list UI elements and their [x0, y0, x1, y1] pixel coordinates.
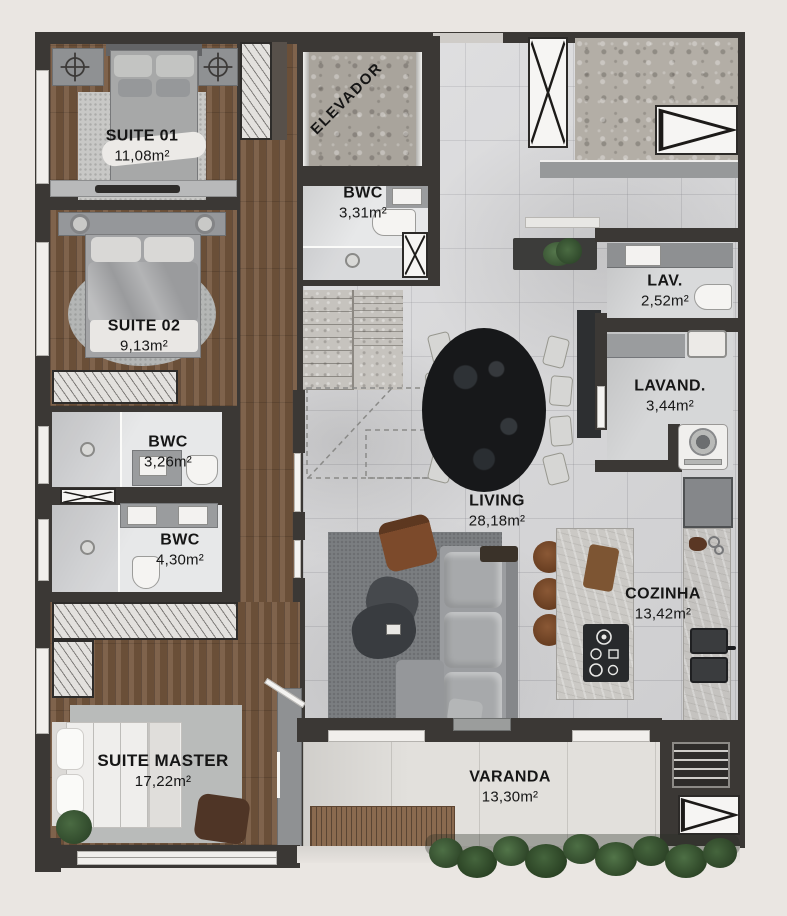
hall-shelf [540, 160, 738, 178]
room-label-bwc-suite02: BWC 3,26m² [144, 432, 192, 473]
master-bed-pillow [56, 728, 84, 770]
suite01-pillow [156, 79, 190, 97]
cooktop-burners-icon [583, 624, 629, 682]
suite02-lamp-left [70, 214, 90, 234]
suite01-pillow [118, 79, 152, 97]
room-label-lavand: LAVAND. 3,44m² [634, 376, 706, 417]
room-label-bwc-master: BWC 4,30m² [156, 530, 204, 571]
bwc-social-sink [392, 188, 422, 205]
room-label-cozinha: COZINHA 13,42m² [625, 584, 701, 625]
room-area: 11,08m² [106, 147, 179, 167]
sofa-cushion [444, 612, 502, 668]
shaft-x-icon [530, 39, 566, 146]
suite02-wardrobe [52, 370, 178, 404]
bwc-suite02-shower-glass [120, 412, 122, 487]
suite02-pillow [91, 237, 141, 262]
plant-icon [556, 238, 582, 264]
wall-corridor-living-1 [293, 390, 305, 453]
plant-icon [595, 842, 637, 876]
washing-machine-door [689, 428, 717, 456]
kitchen-sink [690, 657, 728, 683]
master-wardrobe-handle [277, 752, 280, 798]
stairs-divider [352, 290, 354, 390]
room-label-suite01: SUITE 01 11,08m² [106, 126, 179, 167]
lavand-door [597, 386, 605, 428]
suite01-sill-niche [95, 185, 180, 193]
window-suite02 [36, 242, 49, 356]
lamp-cross-icon [203, 52, 233, 82]
room-area: 17,22m² [97, 772, 228, 792]
room-area: 13,30m² [469, 788, 551, 808]
plant-icon [56, 810, 92, 844]
coffee-table-tray [386, 624, 401, 635]
varanda-planter [453, 718, 511, 731]
stairs-treads-right [353, 290, 403, 352]
varanda-door-sill [572, 730, 650, 742]
varanda-door-sill [328, 730, 425, 742]
lav-left-wall-upper [595, 228, 607, 242]
window-bwc-suite02 [38, 426, 49, 484]
plant-icon [525, 844, 567, 878]
counter-decor [689, 537, 707, 551]
entry-door-sill [433, 33, 503, 43]
hall-closet-dark-side [272, 42, 287, 140]
shaft-box-top [528, 37, 568, 148]
room-label-suite-master: SUITE MASTER 17,22m² [97, 750, 228, 792]
sliding-door-2 [294, 540, 301, 578]
room-area: 28,18m² [469, 512, 525, 532]
bwc-master-sink [127, 506, 157, 525]
room-name: SUITE 02 [108, 316, 181, 337]
shaft-x-icon [404, 234, 426, 276]
room-name: BWC [144, 432, 192, 453]
elevator-rail-left [303, 52, 309, 166]
room-name: COZINHA [625, 584, 701, 605]
room-name: SUITE 01 [106, 126, 179, 147]
plant-icon [633, 836, 669, 866]
shaft-x-icon [62, 491, 114, 503]
lav-top-wall [595, 228, 740, 242]
room-name: BWC [339, 183, 387, 204]
plant-icon [493, 836, 529, 866]
suite02-lamp-right [195, 214, 215, 234]
room-name: SUITE MASTER [97, 750, 228, 772]
wall-corridor-living-2 [293, 512, 305, 540]
room-area: 2,52m² [641, 292, 689, 312]
plant-icon [457, 846, 497, 878]
shrub-row [425, 828, 740, 880]
dining-chair [549, 415, 574, 447]
room-area: 3,26m² [144, 453, 192, 473]
room-label-varanda: VARANDA 13,30m² [469, 767, 551, 808]
room-name: BWC [156, 530, 204, 551]
room-label-bwc-social: BWC 3,31m² [339, 183, 387, 224]
window-suite01 [36, 70, 49, 184]
lav-toilet [694, 284, 732, 310]
stairs-treads-left [303, 290, 353, 390]
room-area: 4,30m² [156, 551, 204, 571]
elevator-rail-right [416, 52, 422, 166]
washing-machine-controls [684, 459, 722, 465]
shaft-box-bwc-left [60, 488, 116, 504]
room-name: LAV. [641, 271, 689, 292]
lav-sink [625, 245, 661, 266]
master-pouf [193, 793, 251, 846]
laundry-sink [687, 330, 727, 358]
master-closet-top [52, 602, 238, 640]
window-master [36, 648, 49, 734]
plant-icon [563, 834, 599, 864]
floor-plan: SUITE 01 11,08m² BWC 3,31m² LAV. 2,52m² … [0, 0, 787, 916]
shaft-box-bwc-social [402, 232, 428, 278]
sofa-backrest [506, 546, 518, 736]
suite02-pillow [144, 237, 194, 262]
master-wardrobe-panel [277, 688, 302, 852]
counter-decor-rings [714, 545, 724, 555]
sofa-arm-tray [480, 546, 518, 562]
room-name: VARANDA [469, 767, 551, 788]
room-name: LIVING [469, 491, 525, 512]
plant-icon [665, 844, 707, 878]
suite01-pillow [114, 55, 152, 77]
duct-triangle-icon [657, 107, 736, 153]
bwc-master-sink [178, 506, 208, 525]
dining-table [422, 328, 546, 492]
room-area: 3,44m² [634, 397, 706, 417]
shower-head-icon [80, 540, 95, 555]
console-ledge [525, 217, 600, 228]
room-area: 3,31m² [339, 204, 387, 224]
sliding-door-1 [294, 453, 301, 512]
master-window [77, 851, 277, 865]
master-closet-left [52, 640, 94, 698]
lavand-counter [607, 334, 685, 358]
lamp-cross-icon [60, 52, 90, 82]
shower-head-icon [80, 442, 95, 457]
master-window-mullion [77, 857, 277, 858]
room-label-lav: LAV. 2,52m² [641, 271, 689, 312]
dining-chair [549, 375, 574, 407]
suite02-duvet [88, 262, 198, 322]
room-area: 9,13m² [108, 337, 181, 357]
bottom-left-corner-post [35, 838, 61, 872]
room-label-living: LIVING 28,18m² [469, 491, 525, 532]
hall-closet [240, 42, 272, 140]
window-bwc-master [38, 519, 49, 581]
ac-grill [672, 742, 730, 788]
kitchen-sink [690, 628, 728, 654]
kitchen-faucet [726, 646, 736, 650]
plant-icon [703, 838, 737, 868]
room-area: 13,42m² [625, 605, 701, 625]
fridge [683, 477, 733, 528]
shower-head-icon [345, 253, 360, 268]
duct-box-top-right [655, 105, 738, 155]
room-label-suite02: SUITE 02 9,13m² [108, 316, 181, 357]
room-name: LAVAND. [634, 376, 706, 397]
suite01-pillow [156, 55, 194, 77]
